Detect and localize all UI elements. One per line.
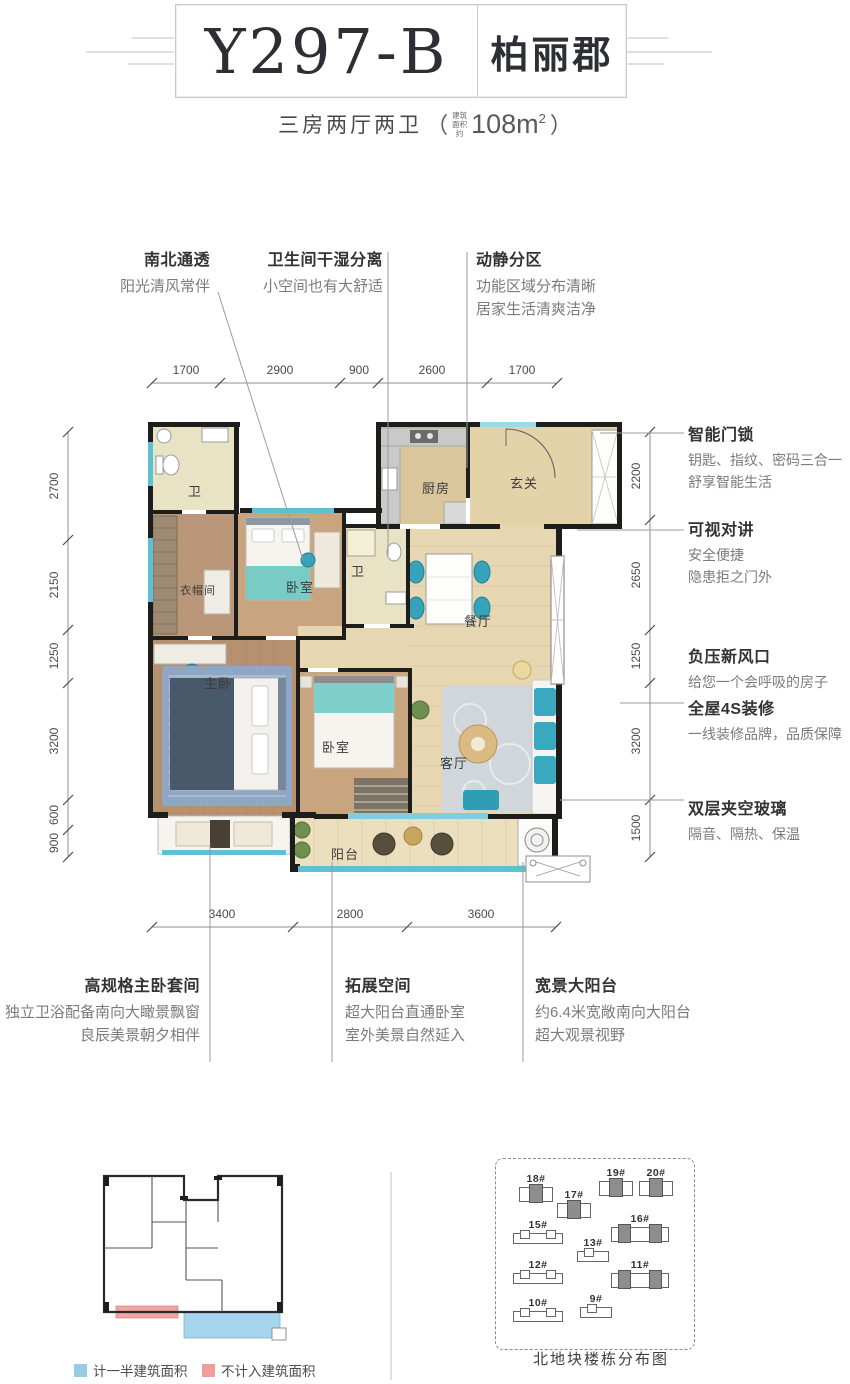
feature-title: 全屋4S装修: [688, 695, 842, 719]
dim-top-2: 900: [349, 363, 369, 377]
project-name: 柏丽郡: [477, 5, 626, 97]
feature-line: 钥匙、指纹、密码三合一: [688, 450, 842, 472]
feature-line: 隐患拒之门外: [688, 567, 772, 589]
dim-left-2: 1250: [47, 642, 61, 669]
building-icon: [519, 1187, 553, 1202]
dim-top-3: 2600: [419, 363, 446, 377]
feature-line: 室外美景自然延入: [345, 1024, 465, 1047]
dim-right-2: 1250: [629, 642, 643, 669]
legend-label: 计一半建筑面积: [93, 1360, 188, 1380]
room-label-master: 主卧: [204, 676, 232, 691]
building-icon: [577, 1251, 609, 1262]
building-9: 9#: [576, 1293, 616, 1318]
feature-line: 隔音、隔热、保温: [688, 824, 800, 846]
mini-plan-walls: [104, 1176, 222, 1312]
feature-north-south: 南北通透 阳光清风常伴: [120, 246, 210, 298]
room-label-bath1: 卫: [188, 484, 202, 499]
dimension-labels: 1700 2900 900 2600 1700 3400 2800 3600 2…: [47, 363, 643, 921]
building-15: 15#: [510, 1219, 566, 1244]
legend-pink-swatch: [202, 1364, 215, 1377]
mini-plan-excluded-area: [116, 1306, 178, 1318]
dim-right-0: 2200: [629, 462, 643, 489]
title-block: Y297-B 柏丽郡: [175, 4, 627, 98]
dim-left-0: 2700: [47, 472, 61, 499]
paren-close: ）: [550, 108, 572, 140]
dim-bottom-0: 3400: [209, 907, 236, 921]
room-label-balcony: 阳台: [331, 847, 359, 862]
dim-top-1: 2900: [267, 363, 294, 377]
ac-platform: [526, 856, 590, 882]
feature-title: 高规格主卧套间: [5, 972, 200, 996]
dim-left-1: 2150: [47, 571, 61, 598]
legend-excluded-area: 不计入建筑面积: [202, 1360, 316, 1380]
feature-title: 拓展空间: [345, 972, 465, 996]
dim-top-0: 1700: [173, 363, 200, 377]
feature-fresh-air: 负压新风口 给您一个会呼吸的房子: [688, 643, 828, 694]
feature-line: 良辰美景朝夕相伴: [5, 1024, 200, 1047]
building-icon: [639, 1181, 673, 1196]
feature-title: 卫生间干湿分离: [263, 246, 383, 270]
building-19: 19#: [594, 1167, 638, 1196]
room-labels: 卫 衣帽间 主卧 卧室 卫 厨房 玄关 餐厅 客厅 卧室 阳台: [180, 476, 538, 862]
room-label-bedroom2: 卧室: [322, 740, 350, 755]
feature-wide-balcony: 宽景大阳台 约6.4米宽敞南向大阳台 超大观景视野: [535, 972, 691, 1048]
legend-label: 不计入建筑面积: [221, 1360, 316, 1380]
feature-line: 阳光清风常伴: [120, 275, 210, 298]
building-12: 12#: [510, 1259, 566, 1284]
site-plan: 18# 17# 19# 20# 15# 16# 13# 12# 11# 10# …: [495, 1158, 695, 1350]
feature-video-intercom: 可视对讲 安全便捷 隐患拒之门外: [688, 516, 772, 588]
floor-texture: [162, 546, 560, 868]
feature-title: 双层夹空玻璃: [688, 795, 800, 819]
unit-model-title: Y297-B: [176, 5, 477, 97]
legend-blue-swatch: [74, 1364, 87, 1377]
feature-line: 超大阳台直通卧室: [345, 1001, 465, 1024]
mini-plan-half-area: [184, 1312, 280, 1338]
feature-title: 南北通透: [120, 246, 210, 270]
dim-bottom-2: 3600: [468, 907, 495, 921]
feature-title: 动静分区: [476, 246, 596, 270]
unit-summary: 三房两厅两卫 （ 建筑 面积 约 108m2 ）: [0, 108, 850, 140]
feature-master-suite: 高规格主卧套间 独立卫浴配备南向大瞰景飘窗 良辰美景朝夕相伴: [5, 972, 200, 1048]
room-label-bedroom1: 卧室: [286, 580, 314, 595]
building-icon: [557, 1203, 591, 1218]
site-plan-caption: 北地块楼栋分布图: [495, 1348, 707, 1369]
feature-extended-space: 拓展空间 超大阳台直通卧室 室外美景自然延入: [345, 972, 465, 1048]
feature-line: 独立卫浴配备南向大瞰景飘窗: [5, 1001, 200, 1024]
room-label-entry: 玄关: [510, 476, 538, 491]
feature-line: 小空间也有大舒适: [263, 275, 383, 298]
feature-line: 功能区域分布清晰: [476, 275, 596, 298]
mini-plan-posts: [104, 1176, 282, 1312]
room-label-dining: 餐厅: [464, 614, 492, 629]
building-label: 12#: [510, 1259, 566, 1271]
dim-right-4: 1500: [629, 814, 643, 841]
feature-title: 智能门锁: [688, 421, 842, 445]
dim-right-1: 2650: [629, 561, 643, 588]
furniture: [153, 428, 618, 866]
dimension-ticks: [63, 378, 655, 932]
feature-line: 超大观景视野: [535, 1024, 691, 1047]
dim-left-4: 600: [47, 805, 61, 825]
dim-left-5: 900: [47, 833, 61, 853]
room-label-living: 客厅: [440, 756, 468, 771]
room-count-label: 三房两厅两卫: [278, 109, 422, 139]
feature-line: 安全便捷: [688, 545, 772, 567]
dim-left-3: 3200: [47, 727, 61, 754]
floorplan-page: { "header": { "model": "Y297-B", "name":…: [0, 0, 850, 1384]
dim-right-3: 3200: [629, 727, 643, 754]
feature-bath-dry-wet: 卫生间干湿分离 小空间也有大舒适: [263, 246, 383, 298]
leader-lines: [210, 252, 684, 1062]
feature-line: 给您一个会呼吸的房子: [688, 672, 828, 694]
dim-bottom-1: 2800: [337, 907, 364, 921]
building-label: 10#: [510, 1297, 566, 1309]
mini-plan-ac: [272, 1328, 286, 1340]
feature-double-glazing: 双层夹空玻璃 隔音、隔热、保温: [688, 795, 800, 846]
building-label: 15#: [510, 1219, 566, 1231]
building-icon: [580, 1307, 612, 1318]
building-icon: [599, 1181, 633, 1196]
feature-title: 宽景大阳台: [535, 972, 691, 996]
floor-plan: 卫 衣帽间 主卧 卧室 卫 厨房 玄关 餐厅 客厅 卧室 阳台: [148, 420, 622, 890]
feature-title: 负压新风口: [688, 643, 828, 667]
building-icon: [611, 1273, 669, 1288]
mini-plan: [90, 1162, 295, 1358]
building-icon: [513, 1273, 563, 1284]
feature-smart-lock: 智能门锁 钥匙、指纹、密码三合一 舒享智能生活: [688, 421, 842, 493]
room-label-bath2: 卫: [351, 564, 365, 579]
room-floors: [150, 426, 620, 868]
legend-half-area: 计一半建筑面积: [74, 1360, 188, 1380]
feature-line: 约6.4米宽敞南向大阳台: [535, 1001, 691, 1024]
area-note: 建筑 面积 约: [452, 111, 467, 138]
feature-title: 可视对讲: [688, 516, 772, 540]
room-label-closet: 衣帽间: [180, 583, 216, 597]
building-17: 17#: [552, 1189, 596, 1218]
feature-4s-decoration: 全屋4S装修 一线装修品牌，品质保障: [688, 695, 842, 746]
walls: [148, 422, 622, 872]
building-11: 11#: [608, 1259, 672, 1288]
feature-line: 舒享智能生活: [688, 472, 842, 494]
paren-open: （: [426, 108, 448, 140]
area-value: 108m2: [471, 109, 546, 140]
feature-zoning: 动静分区 功能区域分布清晰 居家生活清爽洁净: [476, 246, 596, 322]
footer-divider: [390, 1172, 392, 1380]
dim-top-4: 1700: [509, 363, 536, 377]
building-icon: [513, 1233, 563, 1244]
building-20: 20#: [634, 1167, 678, 1196]
feature-line: 一线装修品牌，品质保障: [688, 724, 842, 746]
room-label-kitchen: 厨房: [422, 481, 450, 496]
building-icon: [611, 1227, 669, 1242]
building-10: 10#: [510, 1297, 566, 1322]
feature-line: 居家生活清爽洁净: [476, 298, 596, 321]
windows: [148, 422, 564, 872]
dimension-lines: [68, 383, 650, 927]
building-icon: [513, 1311, 563, 1322]
